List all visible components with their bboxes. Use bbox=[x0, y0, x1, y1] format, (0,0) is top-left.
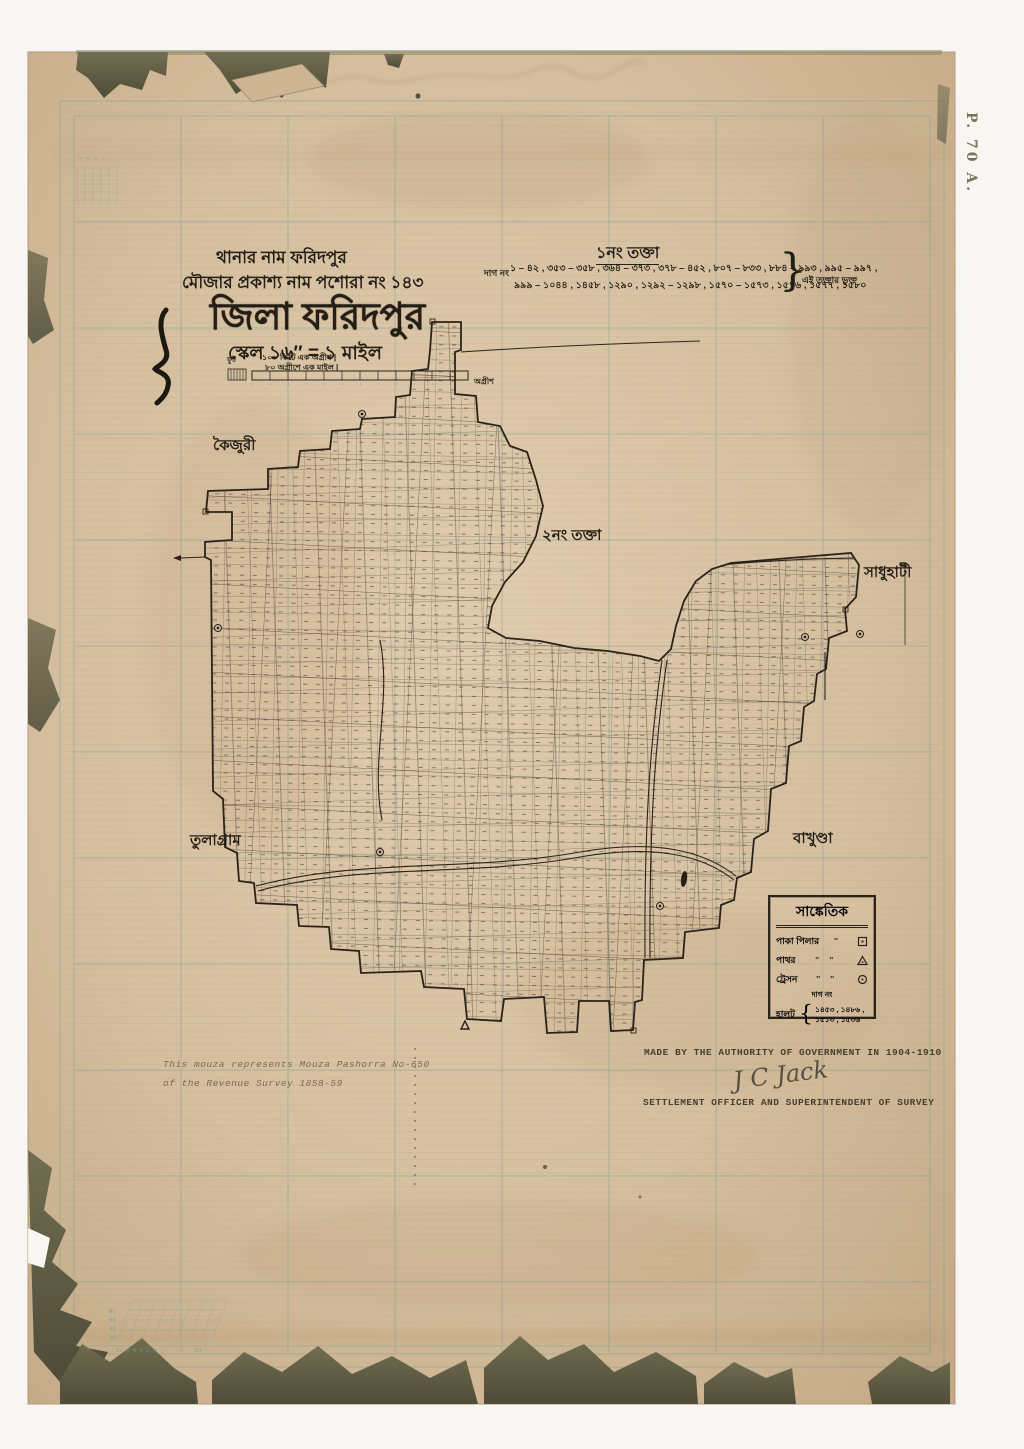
legend-row-pillar: পাকা পিলার ″ bbox=[776, 932, 868, 951]
plot-number-list-1: ১ – ৪২ , ৩৫৩ – ৩৫৮ , ৩৬৪ – ৩৭৩ , ৩৭৮ – ৪… bbox=[510, 264, 877, 274]
square-dot-icon bbox=[857, 936, 868, 947]
dag-no-prefix: দাগ নং bbox=[484, 269, 509, 278]
revenue-survey-note-2: of the Revenue Survey 1858-59 bbox=[163, 1079, 343, 1089]
legend-box: সাঙ্কেতিক পাকা পিলার ″ পাথর ″ ″ ট্রেসন ″… bbox=[768, 895, 876, 1019]
village-label-tulagram: তুলাগ্রাম bbox=[190, 833, 241, 849]
mouza-name-line: মৌজার প্রকাশ্য নাম পশোরা নং ১৪৩ bbox=[182, 274, 424, 292]
plot-list-brace: } bbox=[779, 248, 807, 294]
legend-title: সাঙ্কেতিক bbox=[776, 900, 868, 928]
scalebar-right-label: অগ্রীশ bbox=[474, 378, 494, 386]
halot-numbers-2: ১৫১৩ , ১৫৩৬ bbox=[815, 1015, 864, 1024]
scalebar-note-1: ১০০ ফিটে এক অগ্রীশ | bbox=[262, 354, 336, 362]
village-label-koijuri: কৈজুরী bbox=[213, 438, 256, 454]
settlement-officer-note: SETTLEMENT OFFICER AND SUPERINTENDENT OF… bbox=[643, 1098, 934, 1108]
legend-row-stone: পাথর ″ ″ bbox=[776, 951, 868, 970]
legend-row-station: ট্রেসন ″ ″ bbox=[776, 970, 868, 989]
calibration-x-ticks: 10 8 6 4 2 0 10 bbox=[116, 1348, 201, 1354]
scanned-cadastral-map-page: { "page": { "corner_mark": "P. 70 A." },… bbox=[0, 0, 1024, 1449]
legend-halot-label: হালট bbox=[776, 1007, 795, 1022]
sheet2-label: ২নং তক্তা bbox=[542, 528, 602, 544]
halot-brace: { bbox=[799, 1002, 813, 1027]
corner-sheet-mark: P. 70 A. bbox=[963, 112, 978, 194]
calibration-y-ticks: 80 60 40 20 bbox=[109, 1308, 116, 1344]
village-label-sadhuhati: সাধুহাটী bbox=[864, 565, 911, 581]
legend-halot-row: হালট { ১৪৫৩ , ১৪৮৬ , ১৫১৩ , ১৫৩৬ bbox=[776, 1002, 868, 1027]
authority-note: MADE BY THE AUTHORITY OF GOVERNMENT IN 1… bbox=[644, 1048, 942, 1058]
legend-dag-heading: দাগ নং bbox=[776, 990, 868, 1002]
scalebar-note-2: ৮০ অগ্রীশে এক মাইল | bbox=[265, 364, 338, 372]
legend-label: পাকা পিলার bbox=[776, 934, 819, 949]
ink-speck bbox=[543, 1165, 547, 1169]
map-canvas bbox=[0, 0, 1024, 1449]
thana-name-line: থানার নাম ফরিদপুর bbox=[216, 249, 347, 267]
village-label-bakhunda: বাখুণ্ডা bbox=[793, 831, 833, 847]
sheet1-suffix-note: এই তক্তার ভুক্ত bbox=[802, 276, 857, 285]
circle-dot-icon bbox=[857, 974, 868, 985]
ink-speck bbox=[415, 93, 420, 98]
revenue-survey-note-1: This mouza represents Mouza Pashorra No-… bbox=[163, 1060, 430, 1070]
district-title: জিলা ফরিদপুর bbox=[210, 298, 425, 337]
sheet1-heading: ১নং তক্তা bbox=[596, 246, 659, 265]
legend-label: পাথর bbox=[776, 953, 796, 968]
ink-speck bbox=[639, 1196, 642, 1199]
halot-numbers-1: ১৪৫৩ , ১৪৮৬ , bbox=[815, 1005, 864, 1014]
legend-label: ট্রেসন bbox=[776, 972, 797, 987]
scalebar-left-label: ফুট bbox=[227, 357, 236, 364]
triangle-icon bbox=[857, 955, 868, 966]
